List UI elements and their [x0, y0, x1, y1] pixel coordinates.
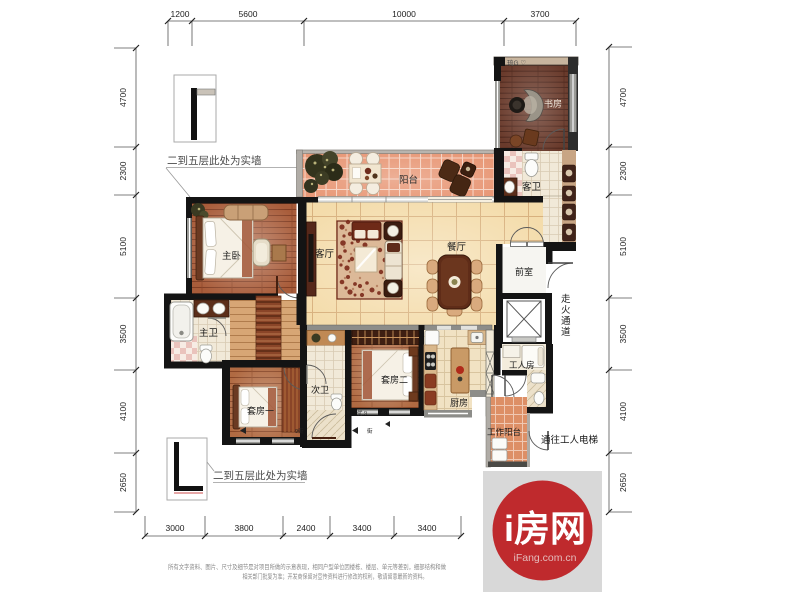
svg-text:3000: 3000 — [166, 523, 185, 533]
svg-text:3400: 3400 — [353, 523, 372, 533]
svg-text:次卫: 次卫 — [311, 384, 329, 395]
svg-text:走: 走 — [561, 294, 571, 305]
svg-text:2650: 2650 — [618, 473, 628, 492]
svg-text:二到五层此处为实墙: 二到五层此处为实墙 — [167, 154, 262, 167]
svg-text:主卫: 主卫 — [199, 327, 219, 339]
svg-text:9街: 9街 — [295, 427, 304, 435]
svg-text:4700: 4700 — [118, 88, 128, 107]
svg-text:1200: 1200 — [171, 9, 190, 19]
svg-text:客卫: 客卫 — [522, 181, 542, 193]
svg-text:套房一: 套房一 — [247, 405, 274, 416]
svg-text:3700: 3700 — [531, 9, 550, 19]
svg-text:工作阳台: 工作阳台 — [487, 427, 521, 437]
svg-text:书房: 书房 — [544, 98, 562, 109]
svg-text:套房二: 套房二 — [381, 374, 408, 385]
svg-text:厨房: 厨房 — [450, 397, 468, 408]
svg-text:i房网: i房网 — [504, 508, 586, 549]
svg-text:3500: 3500 — [618, 324, 628, 343]
svg-text:火: 火 — [561, 305, 571, 316]
svg-text:相关部门批复为准；开发商保留对宣传资料进行修改的权利，敬请留: 相关部门批复为准；开发商保留对宣传资料进行修改的权利，敬请留意最新的资料。 — [243, 572, 428, 581]
svg-text:优 9: 优 9 — [357, 409, 367, 417]
svg-text:4100: 4100 — [118, 402, 128, 421]
svg-text:前室: 前室 — [515, 266, 533, 277]
svg-text:二到五层此处为实墙: 二到五层此处为实墙 — [213, 469, 308, 482]
svg-text:2400: 2400 — [297, 523, 316, 533]
svg-text:5100: 5100 — [618, 237, 628, 256]
svg-text:通: 通 — [561, 316, 571, 327]
svg-text:客厅: 客厅 — [315, 248, 335, 260]
svg-text:5600: 5600 — [239, 9, 258, 19]
svg-text:主卧: 主卧 — [222, 250, 242, 262]
svg-text:5100: 5100 — [118, 237, 128, 256]
svg-text:餐厅: 餐厅 — [447, 241, 467, 253]
svg-text:阳台: 阳台 — [399, 174, 418, 186]
svg-text:工人房: 工人房 — [509, 360, 535, 370]
svg-text:道: 道 — [561, 326, 571, 338]
svg-text:通往工人电梯: 通往工人电梯 — [541, 434, 599, 446]
svg-text:iFang.com.cn: iFang.com.cn — [513, 552, 576, 564]
svg-text:4100: 4100 — [618, 402, 628, 421]
svg-text:2300: 2300 — [118, 161, 128, 180]
svg-text:街: 街 — [367, 427, 373, 435]
svg-text:3500: 3500 — [118, 324, 128, 343]
svg-text:3800: 3800 — [235, 523, 254, 533]
svg-text:2650: 2650 — [118, 473, 128, 492]
svg-text:4700: 4700 — [618, 88, 628, 107]
svg-text:琉G ♡: 琉G ♡ — [507, 58, 526, 67]
svg-text:3400: 3400 — [418, 523, 437, 533]
svg-text:所有文字资料、图片、尺寸及细节是对项目所做的示意表现，相同户: 所有文字资料、图片、尺寸及细节是对项目所做的示意表现，相同户型单位因楼栋、楼层、… — [168, 562, 446, 571]
svg-text:10000: 10000 — [392, 9, 416, 19]
svg-text:2300: 2300 — [618, 161, 628, 180]
